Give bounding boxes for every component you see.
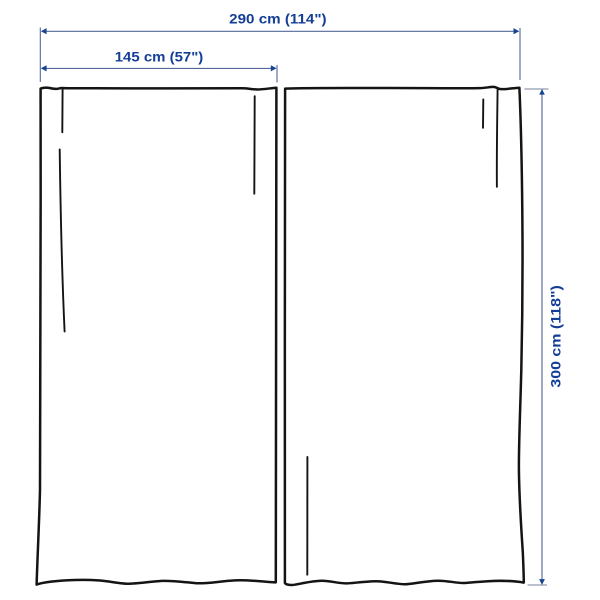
svg-text:145 cm (57"): 145 cm (57") bbox=[115, 49, 204, 65]
svg-text:290 cm (114"): 290 cm (114") bbox=[229, 10, 326, 26]
svg-text:300 cm (118"): 300 cm (118") bbox=[547, 285, 563, 388]
